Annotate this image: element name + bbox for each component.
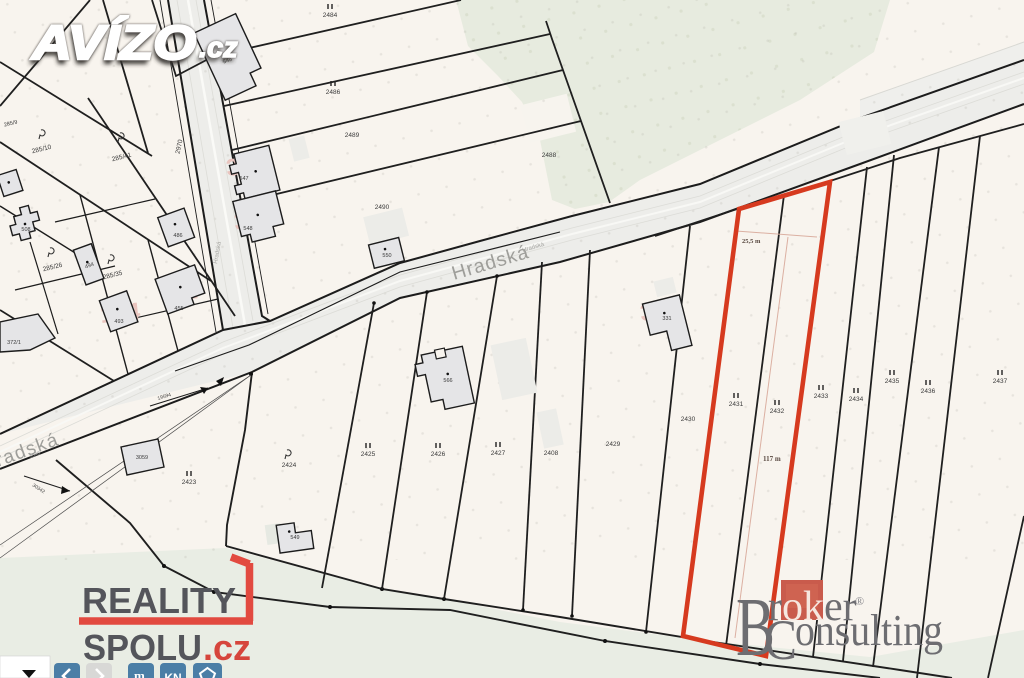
svg-text:2432: 2432 [770,408,785,415]
svg-text:508: 508 [21,227,30,233]
svg-text:KN: KN [164,671,181,678]
svg-text:2430: 2430 [681,416,696,423]
svg-text:onsulting: onsulting [795,606,943,655]
svg-text:.cz: .cz [199,32,238,64]
svg-text:.cz: .cz [203,627,251,668]
svg-text:2488: 2488 [542,152,557,159]
svg-text:REALITY: REALITY [82,580,236,621]
svg-text:2427: 2427 [491,450,506,457]
svg-text:m.: m. [134,668,148,678]
svg-text:2434: 2434 [849,396,864,403]
svg-text:486: 486 [173,233,182,239]
svg-text:25,5 m: 25,5 m [742,238,761,245]
svg-text:2433: 2433 [814,393,829,400]
svg-text:455: 455 [174,306,183,312]
svg-text:2408: 2408 [544,450,559,457]
svg-text:2424: 2424 [282,462,297,469]
svg-text:2484: 2484 [323,12,338,19]
svg-text:2489: 2489 [345,132,360,139]
svg-text:2425: 2425 [361,451,376,458]
svg-text:2431: 2431 [729,401,744,408]
svg-text:2486: 2486 [326,89,341,96]
svg-text:2423: 2423 [182,479,197,486]
svg-text:550: 550 [382,253,391,259]
svg-text:™: ™ [221,60,226,66]
svg-text:2429: 2429 [606,441,621,448]
svg-text:566: 566 [443,378,452,384]
svg-text:2435: 2435 [885,378,900,385]
svg-text:549: 549 [290,535,299,541]
svg-text:548: 548 [243,226,252,232]
svg-text:117 m: 117 m [763,455,781,463]
svg-text:3059: 3059 [136,455,148,461]
svg-text:C: C [764,609,797,672]
svg-text:372/1: 372/1 [7,340,21,346]
svg-text:331: 331 [662,316,671,322]
svg-text:AVÍZO: AVÍZO [31,16,196,70]
svg-text:2437: 2437 [993,378,1008,385]
svg-text:2436: 2436 [921,388,936,395]
svg-text:493: 493 [114,319,123,325]
svg-text:SPOLU: SPOLU [83,627,202,668]
svg-text:2490: 2490 [375,204,390,211]
svg-text:547: 547 [239,176,248,182]
svg-text:2426: 2426 [431,451,446,458]
